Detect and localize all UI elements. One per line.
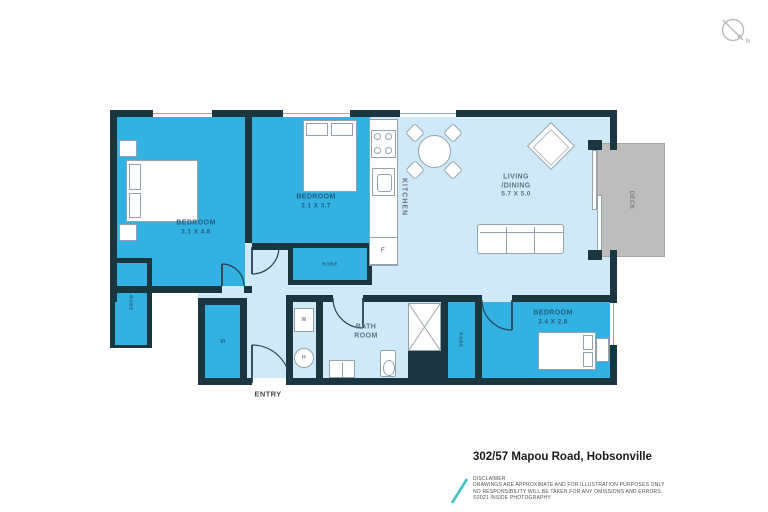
compass-icon <box>723 20 744 41</box>
wall-segment <box>240 298 247 385</box>
wall-segment <box>408 351 441 378</box>
accent-slash <box>452 479 467 503</box>
wall-segment <box>363 295 441 302</box>
wall-segment <box>475 295 482 385</box>
living-line1: LIVING <box>501 173 531 182</box>
robe2-label: ROBE <box>322 262 337 267</box>
wall-segment <box>252 243 292 250</box>
north-label: N <box>746 39 751 45</box>
nightstand-symbol <box>119 140 137 157</box>
disclaimer-line: ©2021 INSIDE PHOTOGRAPHY <box>473 495 733 501</box>
robe1-label: ROBE <box>129 295 134 310</box>
robe3-label: ROBE <box>459 332 464 347</box>
wall-segment <box>293 295 333 302</box>
wall-segment <box>244 286 252 293</box>
pillow-symbol <box>129 193 141 218</box>
bedroom3-label: BEDROOM 3.4 X 2.8 <box>533 310 572 327</box>
wall-segment <box>441 295 448 385</box>
wall-segment <box>588 250 602 260</box>
slider-door-panel <box>597 195 602 255</box>
pillow-symbol <box>583 352 593 367</box>
living-dining-label: LIVING /DINING 5.7 X 5.0 <box>501 173 531 199</box>
address-title: 302/57 Mapou Road, Hobsonville <box>473 451 652 463</box>
toilet-symbol <box>380 350 396 377</box>
bathroom-line1: BATH <box>354 324 377 333</box>
bedroom3-dims: 3.4 X 2.8 <box>533 318 572 327</box>
bathroom-line2: ROOM <box>354 332 377 341</box>
wall-segment <box>198 378 252 385</box>
outside-notch <box>110 348 198 388</box>
pillow-symbol <box>583 335 593 350</box>
nightstand-symbol <box>596 338 609 362</box>
sink-symbol <box>372 168 395 196</box>
pillow-symbol <box>306 123 328 136</box>
stove-symbol <box>371 130 396 158</box>
wall-segment <box>448 295 475 302</box>
wall-segment <box>292 378 617 385</box>
bedroom1-label: BEDROOM 3.1 X 4.8 <box>176 220 215 237</box>
pillow-symbol <box>331 123 353 136</box>
living-line2: /DINING <box>501 182 531 191</box>
sofa-symbol <box>477 224 564 254</box>
wall-segment <box>110 286 222 293</box>
entry-label: ENTRY <box>254 390 281 399</box>
wall-segment <box>286 295 293 385</box>
bedroom3-name: BEDROOM <box>533 310 572 319</box>
window-symbol <box>283 110 350 117</box>
window-symbol <box>153 110 212 117</box>
wall-segment <box>512 295 617 302</box>
pillow-symbol <box>129 164 141 190</box>
wall-segment <box>198 298 205 385</box>
floor-plan-canvas: F W H <box>0 0 768 512</box>
wall-segment <box>588 140 602 150</box>
shower-symbol <box>408 303 441 351</box>
nightstand-symbol <box>119 224 137 241</box>
living-dims: 5.7 X 5.0 <box>501 190 531 199</box>
wall-segment <box>610 117 617 150</box>
wall-segment <box>110 110 117 302</box>
outside-notch <box>152 293 198 350</box>
dining-table-symbol <box>418 135 451 168</box>
bathroom-label: BATH ROOM <box>354 324 377 341</box>
bedroom1-dims: 3.1 X 4.8 <box>176 228 215 237</box>
bedroom2-dims: 3.1 X 3.7 <box>296 202 335 211</box>
washer-label: W <box>301 317 306 323</box>
bedroom1-name: BEDROOM <box>176 220 215 229</box>
window-symbol <box>610 303 617 345</box>
fridge-label: F <box>381 248 385 254</box>
storage-label: S <box>219 339 226 344</box>
disclaimer-block: DISCLAIMER DRAWINGS ARE APPROXIMATE AND … <box>473 476 733 501</box>
dryer-label: H <box>302 355 306 361</box>
kitchen-label: KITCHEN <box>401 178 408 216</box>
bedroom2-label: BEDROOM 3.1 X 3.7 <box>296 194 335 211</box>
deck-label: DECK <box>628 191 634 210</box>
bedroom2-name: BEDROOM <box>296 194 335 203</box>
wall-segment <box>245 117 252 243</box>
wall-segment <box>316 302 323 378</box>
vanity-symbol <box>329 360 355 378</box>
window-symbol <box>400 110 456 117</box>
